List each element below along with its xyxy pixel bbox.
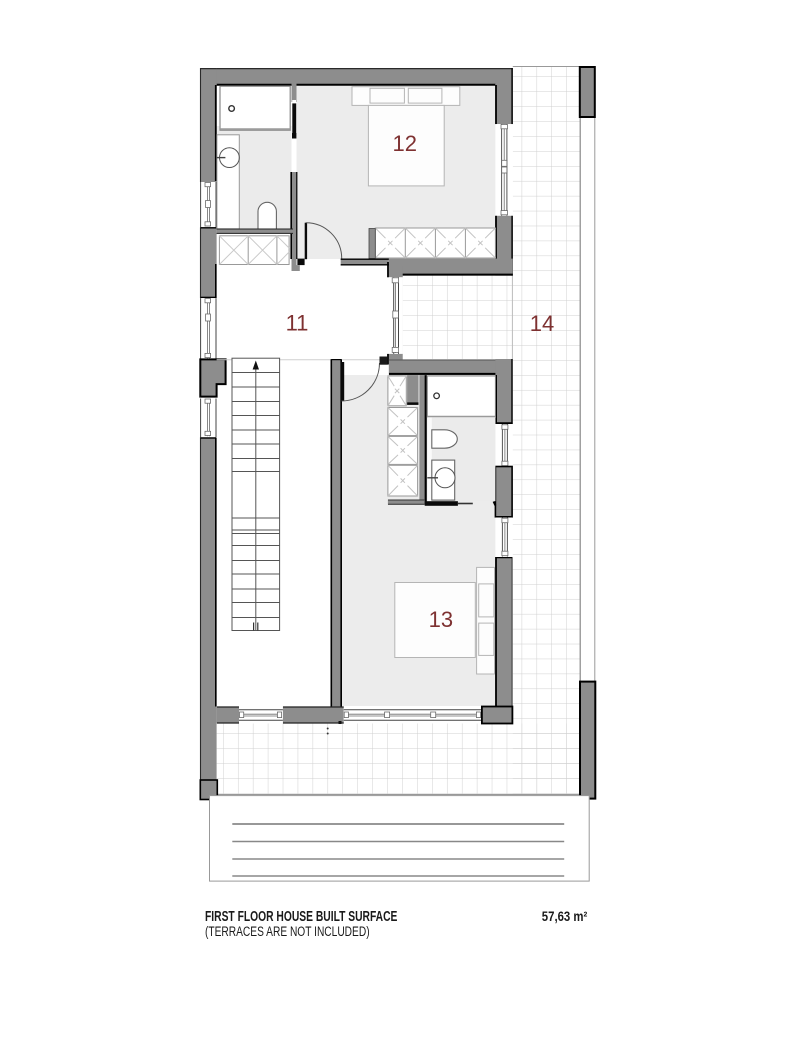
svg-text:12: 12 [392, 131, 416, 156]
svg-text:57,63 m²: 57,63 m² [542, 908, 588, 924]
svg-text:(TERRACES ARE NOT INCLUDED): (TERRACES ARE NOT INCLUDED) [205, 924, 370, 939]
svg-text:FIRST FLOOR HOUSE BUILT SURFAC: FIRST FLOOR HOUSE BUILT SURFACE [205, 909, 398, 925]
svg-text:13: 13 [429, 607, 453, 632]
svg-text:11: 11 [286, 311, 309, 336]
svg-text:14: 14 [530, 311, 554, 336]
